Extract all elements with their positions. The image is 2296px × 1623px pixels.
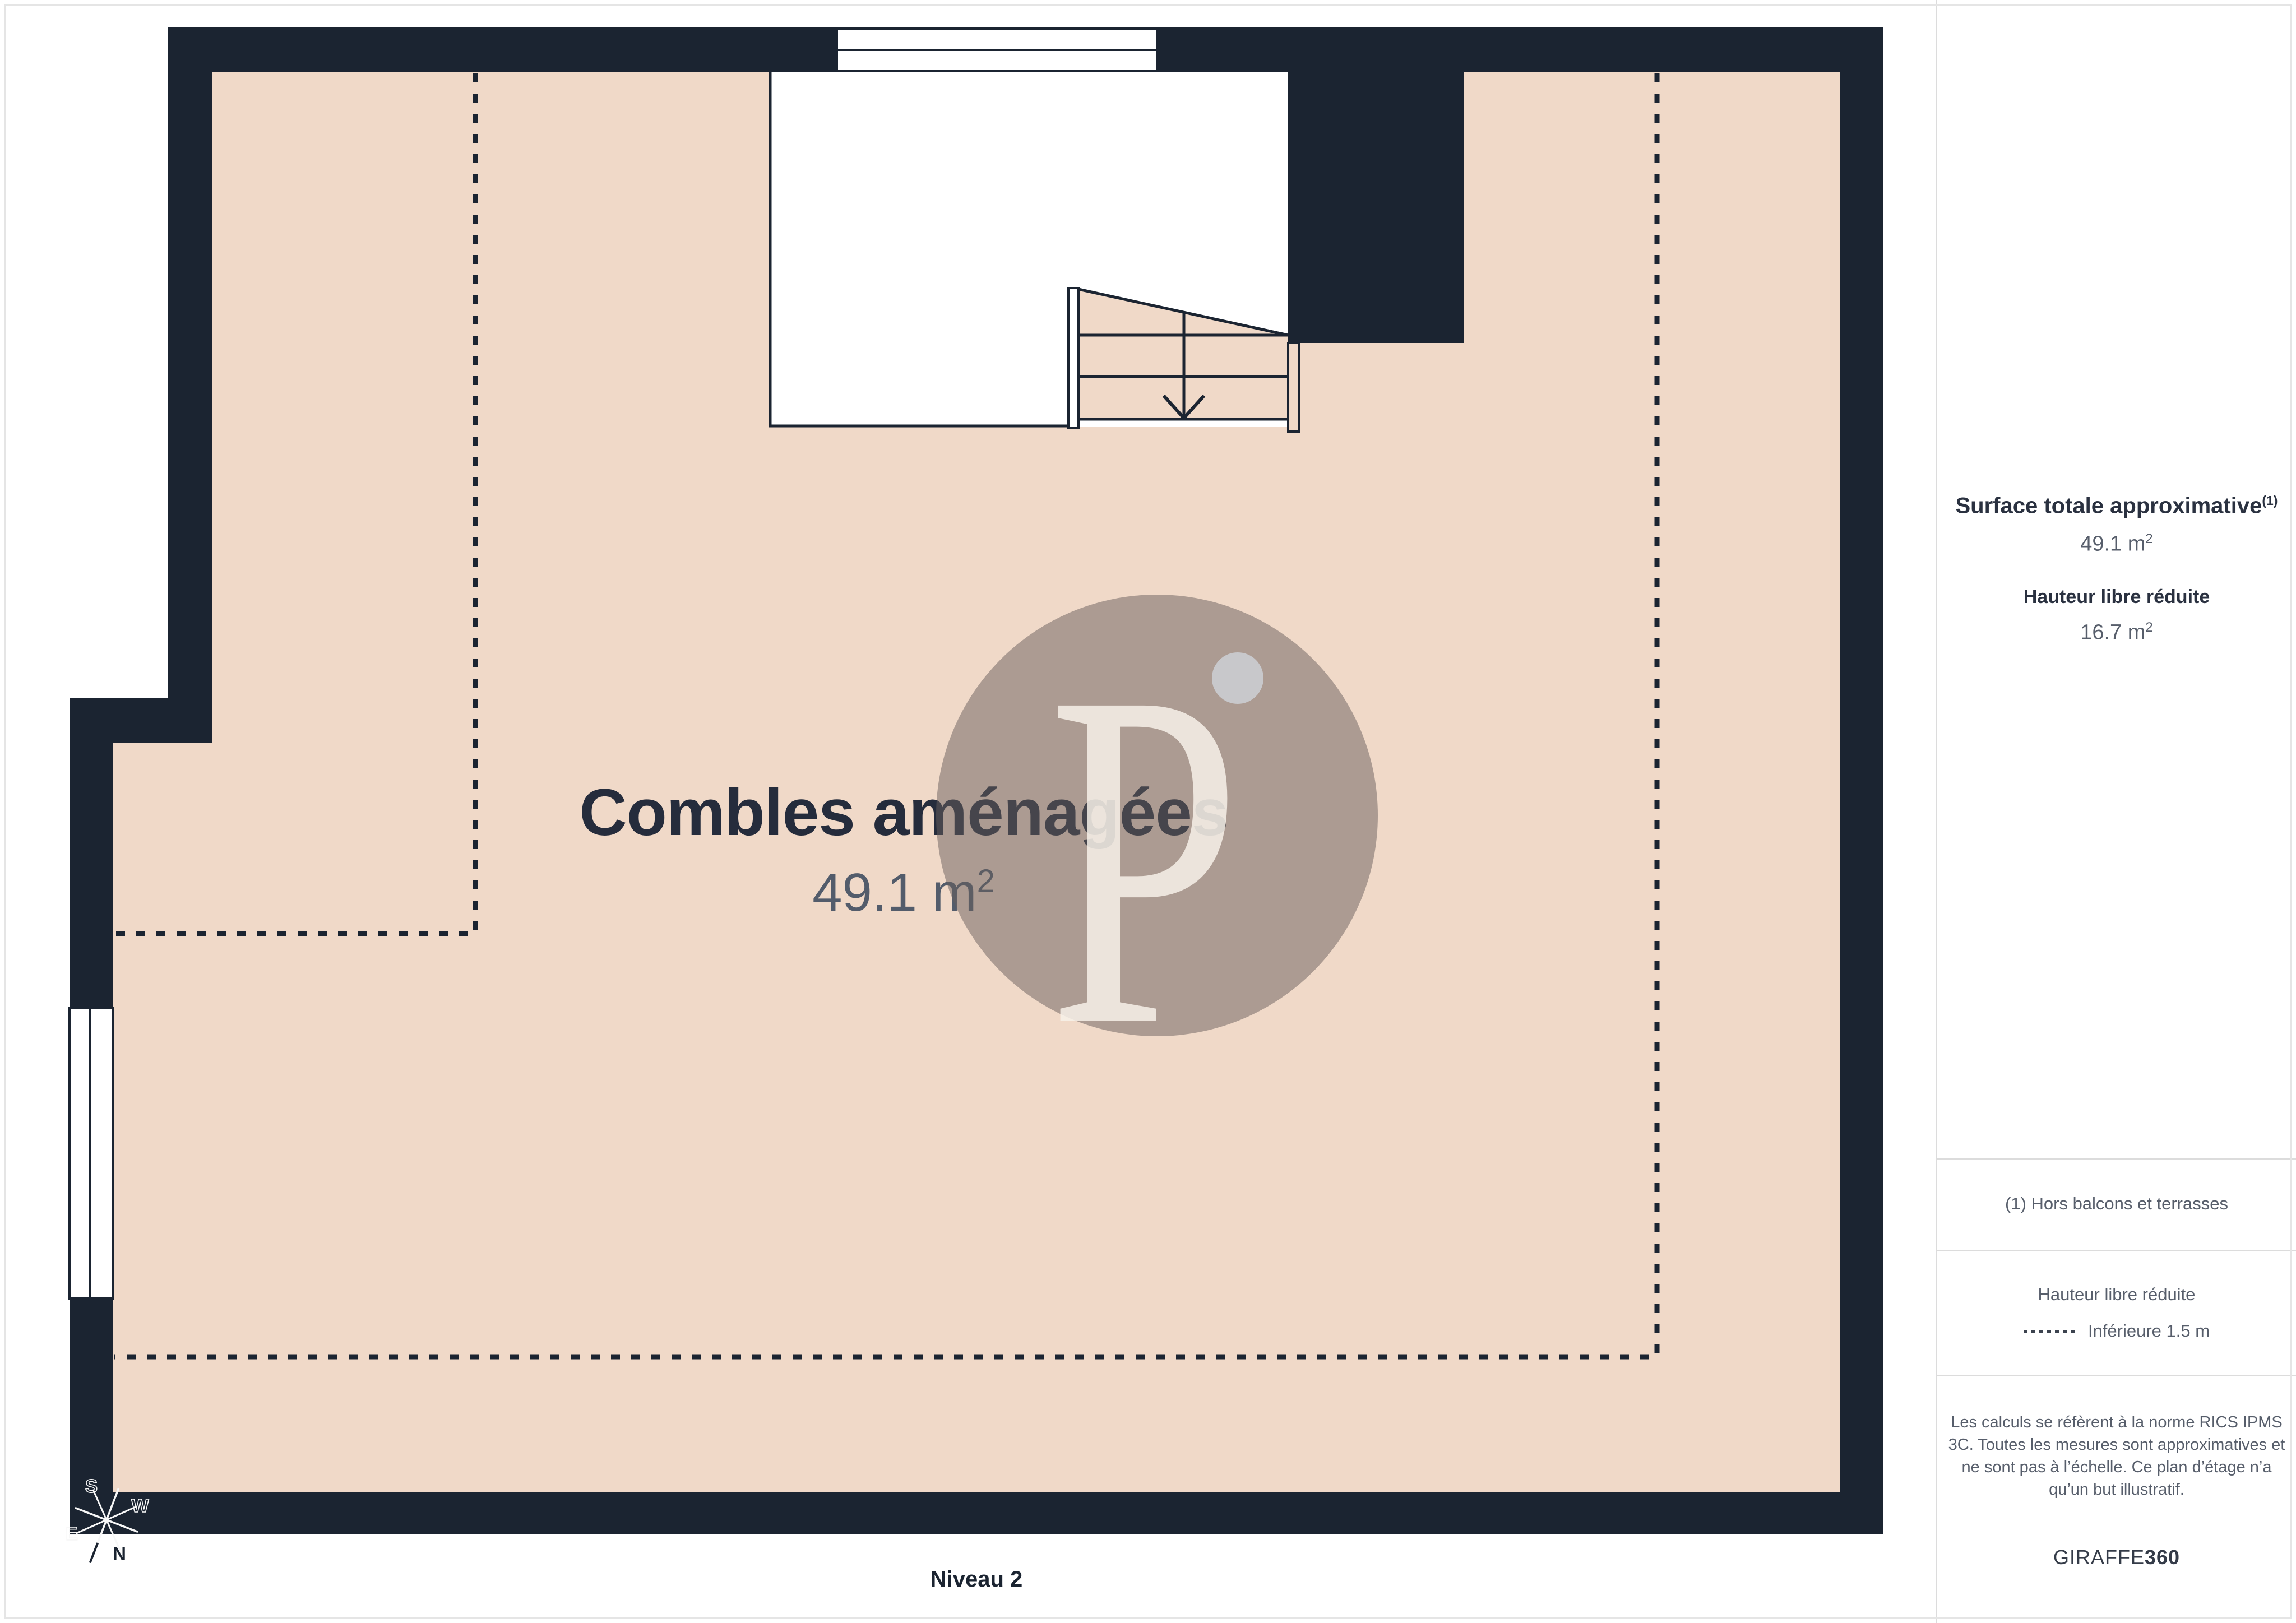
compass-label-north: N (113, 1543, 126, 1564)
sidebar-separator-3 (1937, 1375, 2296, 1376)
dashed-line-swatch (2024, 1330, 2077, 1333)
reduced-height-value-text: 16.7 m (2080, 621, 2145, 644)
level-label: Niveau 2 (808, 1567, 1145, 1592)
sidebar-separator-1 (1937, 1158, 2296, 1160)
room-area: 49.1 m2 (455, 849, 1352, 925)
surface-total-value-sup: 2 (2145, 531, 2152, 546)
compass-label-west: W (131, 1495, 149, 1516)
disclaimer-text: Les calculs se réfèrent à la norme RICS … (1937, 1411, 2296, 1501)
compass-label-south: S (85, 1476, 98, 1496)
surface-total-title-text: Surface totale approximative (1956, 493, 2262, 518)
surface-total-value-text: 49.1 m (2080, 532, 2145, 556)
legend-row: Inférieure 1.5 m (1937, 1320, 2296, 1342)
footnote-balconies: (1) Hors balcons et terrasses (1937, 1194, 2296, 1214)
info-sidebar: Surface totale approximative(1) 49.1 m2 … (1936, 0, 2296, 1623)
room-area-sup: 2 (977, 863, 995, 899)
brand-name: GIRAFFE (2053, 1546, 2145, 1569)
stair-left-stringer (1068, 288, 1078, 428)
window-top (837, 29, 1158, 71)
brand-logo: GIRAFFE360 (1937, 1546, 2296, 1569)
wall-left-upper (168, 27, 212, 743)
room-name: Combles aménagées (455, 776, 1352, 849)
surface-total-title: Surface totale approximative(1) (1937, 493, 2296, 518)
reduced-height-title: Hauteur libre réduite (1937, 586, 2296, 608)
floor-plan-page: S W E N Combles aménagées 49.1 m2 P Nive… (0, 0, 2296, 1623)
wall-bottom (70, 1492, 1883, 1534)
wall-right (1840, 27, 1883, 1534)
reduced-height-value-sup: 2 (2145, 620, 2152, 635)
window-left (70, 1008, 113, 1299)
legend-item-label: Inférieure 1.5 m (2088, 1321, 2210, 1341)
compass-label-east: E (66, 1523, 78, 1544)
room-area-value: 49.1 m (812, 862, 976, 922)
reduced-height-value: 16.7 m2 (1937, 620, 2296, 645)
sidebar-separator-2 (1937, 1250, 2296, 1251)
structural-block (1288, 72, 1464, 343)
brand-suffix: 360 (2145, 1546, 2180, 1569)
room-label: Combles aménagées 49.1 m2 (455, 776, 1352, 925)
stair-right-stringer (1288, 343, 1299, 432)
surface-total-value: 49.1 m2 (1937, 531, 2296, 557)
compass-north-needle (90, 1543, 98, 1562)
legend-title: Hauteur libre réduite (1937, 1285, 2296, 1305)
surface-total-title-sup: (1) (2262, 493, 2278, 508)
